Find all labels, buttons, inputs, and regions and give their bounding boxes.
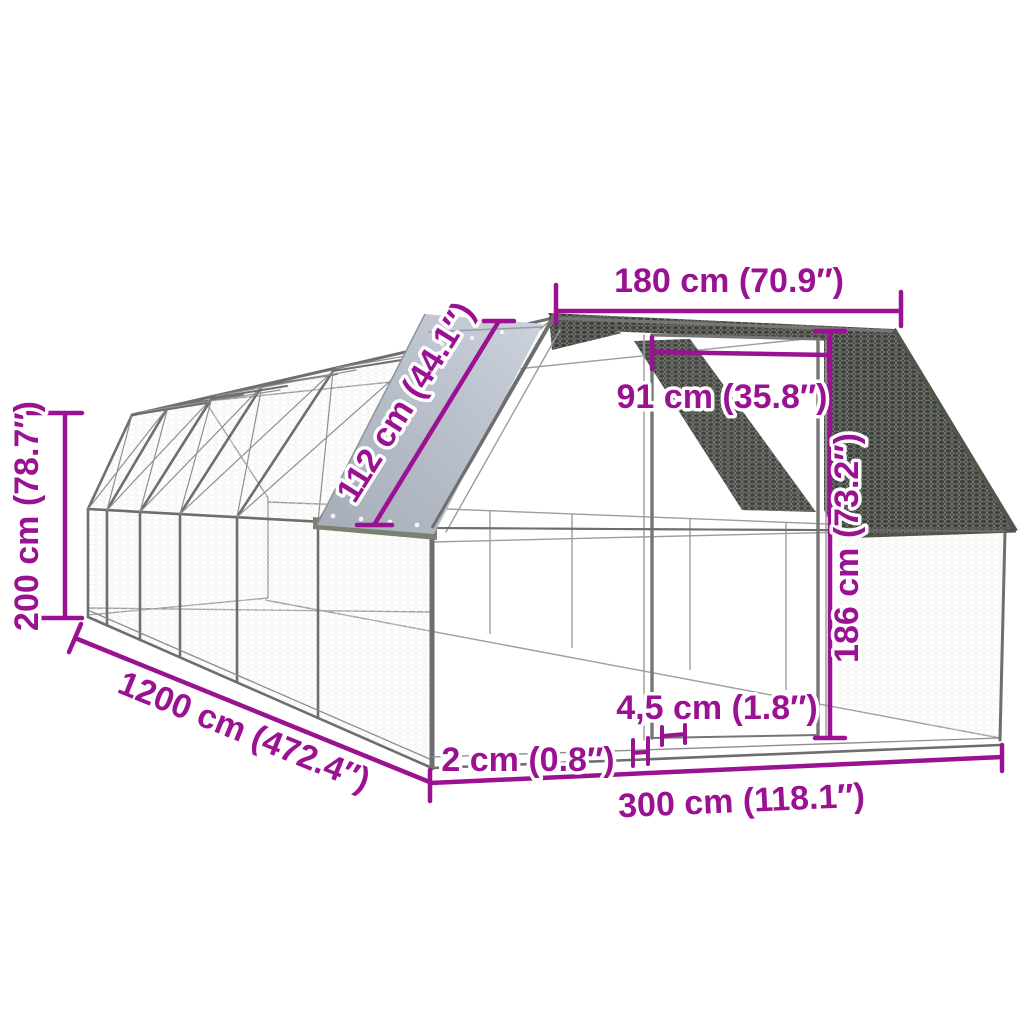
dimension-label-gap-small: 4,5 cm (1.8″) [616, 689, 818, 727]
dimension-label-top-width: 180 cm (70.9″) [614, 262, 844, 300]
dimension-label-tube-small: 2 cm (0.8″) [441, 741, 614, 779]
chicken-run-diagram-canvas: 180 cm (70.9″) 91 cm (35.8″) 112 cm (44.… [0, 0, 1024, 1024]
mesh-inner-slope [634, 339, 816, 512]
dim-tube-small-line [633, 738, 648, 766]
dim-gap-small-line [662, 725, 685, 745]
dimension-label-wall-height: 186 cm (73.2″) [828, 433, 866, 663]
dark-mesh-panels [548, 313, 1016, 537]
dimension-label-door-width: 91 cm (35.8″) [617, 378, 828, 416]
dimension-label-total-height: 200 cm (78.7″) [8, 401, 46, 631]
dimension-label-front-width: 300 cm (118.1″) [617, 777, 865, 826]
product-dimension-diagram: 180 cm (70.9″) 91 cm (35.8″) 112 cm (44.… [0, 0, 1024, 1024]
